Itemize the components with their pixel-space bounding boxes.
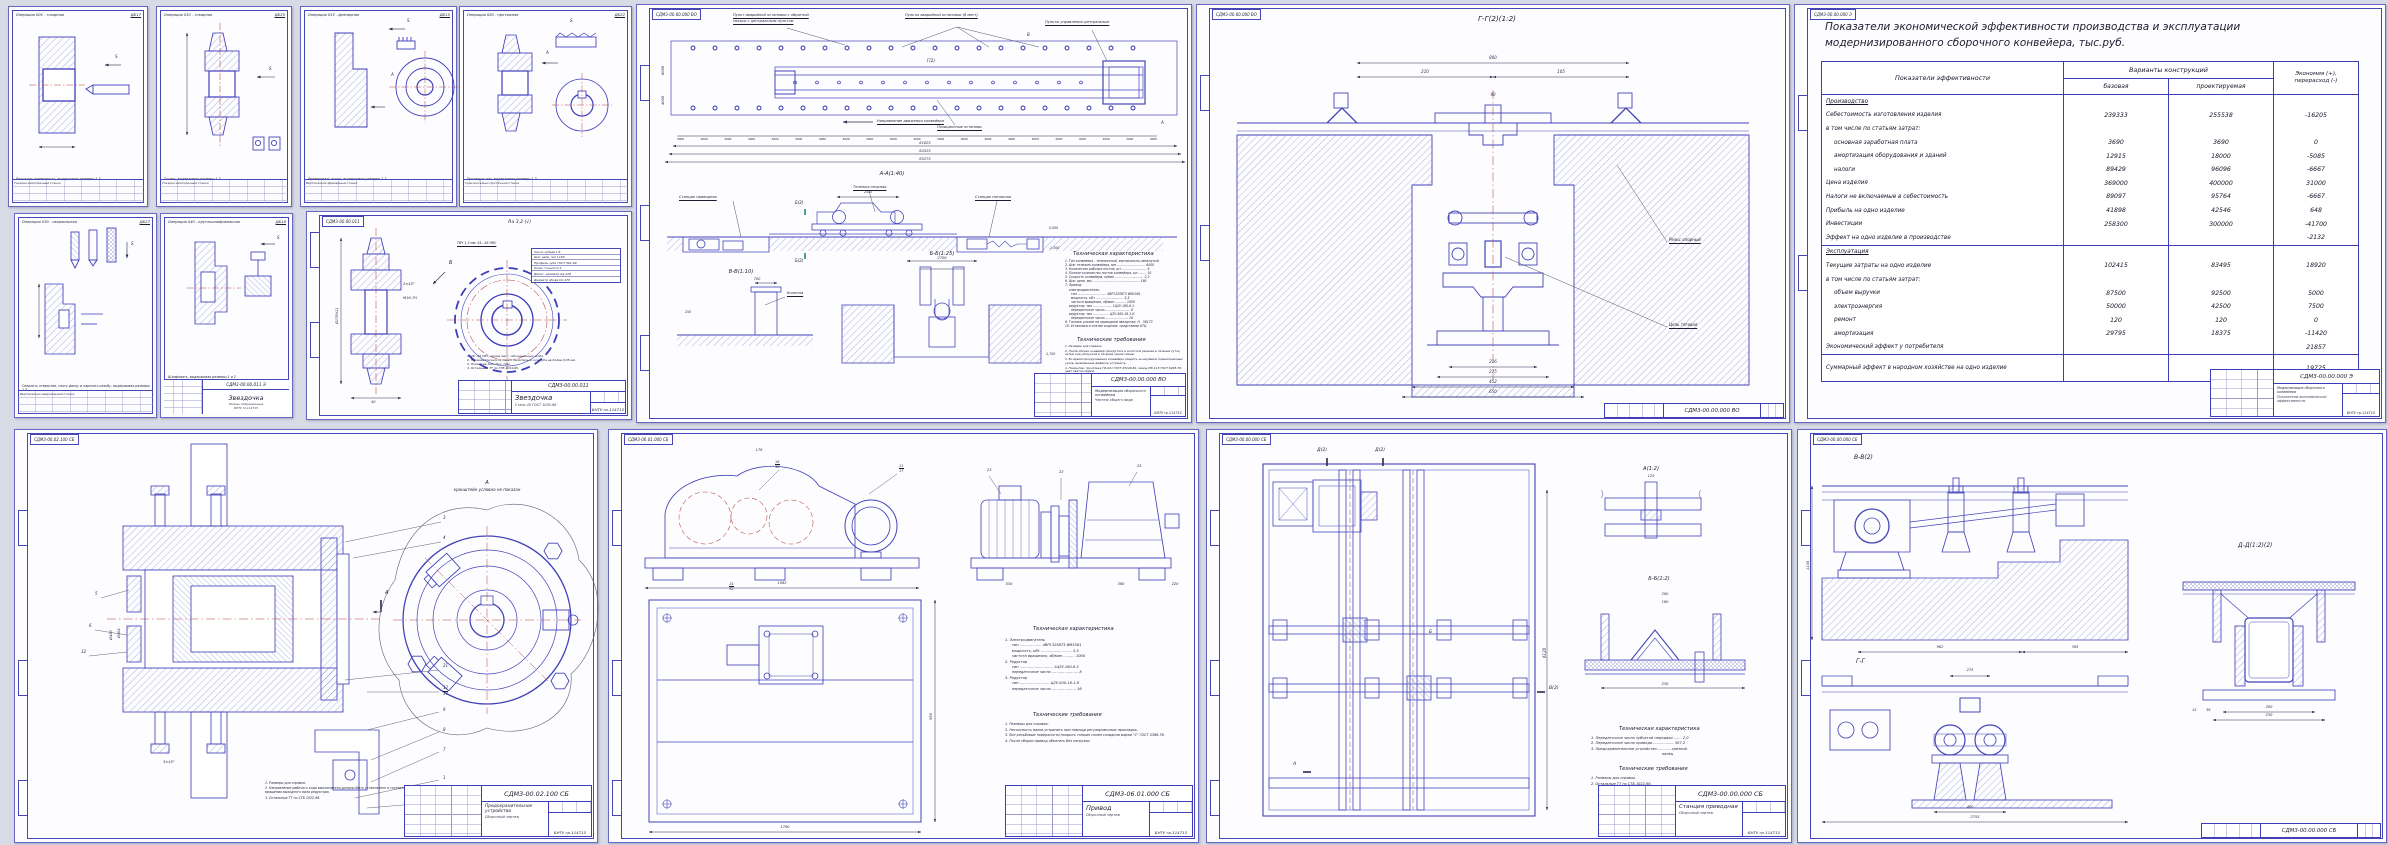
dim-label: 700 [754, 277, 761, 281]
sheet-op-card-4: Операция 020 - протяжная ДБ22 А S Протян… [459, 6, 632, 207]
dim-label: 178 [756, 448, 763, 452]
doc-type: Сборочный чертеж [1679, 811, 1739, 815]
sheet-op-card-1: Операция 005 - токарная ДБ17 S Расточить… [8, 6, 148, 207]
dim-label: 395 [2072, 645, 2079, 649]
dim-label: 275 [1489, 370, 1497, 375]
station-title-block: СДМ3-00.00.000 СБ Станция приводная Сбор… [1598, 785, 1786, 837]
doc-type: Сборочный чертеж [485, 815, 545, 819]
op-card-table: Токарно-винторезный станок [160, 179, 288, 203]
econ-table-row: Прибыль на одно изделие 41898 42546 648 [1822, 204, 2358, 218]
detail-bb-label: Б-Б(1:2) [1648, 576, 1669, 582]
dim-label: Ø420 [109, 630, 113, 640]
op-card-table: Вертикально-сверлильный станок [18, 390, 153, 414]
econ-table-row: Себестоимость изготовления изделия 23933… [1822, 109, 2358, 123]
dim-label: 452 [1489, 380, 1497, 385]
elevation-label: -1,700 [1045, 353, 1055, 357]
detail-a-label: А(1:2) [1643, 466, 1659, 472]
doc-code: СДМ3-00.00.000 Э [2274, 370, 2379, 384]
view-a-label: А [546, 51, 549, 56]
feed-label: S [131, 242, 134, 247]
doc-title: Предохранительное устройство [485, 804, 545, 814]
callout: 25 [1137, 464, 1142, 468]
tech-req-list: 1. Размеры для справок.2. Несоосность ва… [1005, 722, 1190, 744]
econ-table-row: Текущие затраты на одно изделие 102415 8… [1822, 259, 2358, 273]
org-label: БНТУ гр.114715 [591, 403, 625, 413]
dim-label: 2755 [1970, 815, 1979, 819]
feed-label: S [570, 19, 573, 24]
sheet-conveyor-general-view: СДМ3-00.00.000 ВО [636, 4, 1192, 423]
tech-char-list: 1. Электродвигатель тип ................… [1005, 638, 1085, 692]
part-name: Звездочка [515, 394, 587, 402]
sprocket-title-block: СДМ3-00.00.011 Звездочка Сталь 45 ГОСТ 1… [458, 380, 626, 414]
step-dims-row: 3000300030003000300030003000300030003000… [677, 138, 1157, 141]
col-header-economy: Экономия (+),перерасход (-) [2274, 62, 2358, 94]
org-label: БНТУ гр.114715 [234, 406, 258, 410]
econ-table-row: ремонт 120 120 0 [1822, 314, 2358, 328]
sprocket-notes: 1. 28...32 HRC, кроме мест, обозначенных… [467, 354, 625, 370]
dim-label: 800 [1489, 56, 1497, 61]
part-name: Звездочка [228, 394, 263, 402]
feed-label: S [115, 55, 118, 60]
col-header-indicators: Показатели эффективности [1822, 62, 2064, 94]
doc-title: Привод [1086, 804, 1146, 812]
callout: 21 [443, 664, 448, 669]
dim-label: 230 [1662, 682, 1669, 686]
tech-req-title: Технические требования [1033, 712, 1102, 718]
dim-label: 1780 [780, 825, 789, 829]
label-emergency-stops: Пульты аварийной остановки (6 мест) [905, 13, 978, 17]
marker-v: В(2) [1549, 686, 1559, 691]
label-emergency-stop-feedback-2: связью с центральным пультом [733, 19, 794, 23]
label-traction-chain: Цепь тяговая [1669, 323, 1697, 328]
econ-title-line1: Показатели экономической эффективности п… [1825, 21, 2240, 33]
dim-label: 40 [371, 400, 376, 404]
dim-label: 65275 [919, 157, 930, 161]
label-emergency-stop-feedback: Пульт аварийной остановки с обратной [733, 13, 809, 17]
callout: 7 [443, 748, 446, 753]
doc-code: СДМ3-06.01.000 СБ [1083, 786, 1192, 802]
org-label: БНТУ гр.114715 [1150, 813, 1192, 836]
dim-label: Ø176h11 [335, 307, 339, 324]
drive-title-block: СДМ3-06.01.000 СБ Привод Сборочный черте… [1005, 785, 1193, 837]
sprocket-param-table: Число зубьев z 8Шаг цепи, мм t 160Профил… [531, 248, 621, 283]
callout: 1217 [443, 686, 448, 696]
section-aa-label: А-А(1:40) [880, 171, 905, 177]
view-b-label: Б [449, 260, 453, 266]
label-central-controls: Пульты управления центральные [1045, 20, 1109, 24]
marker-g2: Г(2) [927, 59, 935, 64]
econ-table-row: Инвестиции 258300 300000 -41700 [1822, 217, 2358, 231]
doc-type: Чертеж общего вида [1095, 398, 1147, 402]
sheet-safety-device: СДМ3-00.02.100 СБ [14, 429, 598, 843]
dim-label: 3×45° [163, 760, 175, 764]
econ-table-row: налоги 89429 96096 -6667 [1822, 163, 2358, 177]
org-label: БНТУ гр.114715 [2343, 394, 2379, 416]
dim-label: 530 [1006, 582, 1013, 586]
doc-title: Модернизация сборочного конвейера [1095, 389, 1147, 397]
dim-label: 36 [2206, 708, 2211, 712]
dim-label: 160 [1662, 600, 1669, 604]
doc-code: СДМ3-00.02.100 СБ [482, 786, 591, 802]
econ-table-row: электроэнергия 50000 42500 7500 [1822, 300, 2358, 314]
dim-label: 250 [685, 311, 691, 315]
material-label: Сталь 45 ГОСТ 1050-88 [515, 403, 587, 407]
label-tension-station: Станция натяжная [975, 195, 1011, 199]
feed-label: S [269, 67, 272, 72]
dim-label: Ø404 [117, 628, 121, 638]
dim-label: 275 [1967, 668, 1974, 672]
label-column: Колонна [787, 291, 803, 295]
elevation-label: 0,000 [1049, 227, 1058, 231]
econ-title-block: СДМ3-00.00.000 Э Модернизация сборочного… [2210, 369, 2380, 417]
econ-title-line2: модернизированного сборочного конвейера,… [1825, 37, 2125, 49]
conveyor-title-block: СДМ3-00.00.000 ВО Модернизация сборочног… [1034, 373, 1186, 417]
marker-d1: Д(2) [1317, 448, 1327, 453]
tech-char-title: Техническая характеристика [1033, 626, 1114, 632]
view-a-label: А [391, 73, 394, 78]
dim-label: 200 [2266, 705, 2273, 709]
marker-d2: Д(2) [1375, 448, 1385, 453]
elevation-label: -1,500 [1049, 247, 1059, 251]
doc-code: СДМ3-00.00.011 [512, 381, 625, 392]
doc-code: СДМ3-00.00.011 Э [203, 380, 289, 390]
marker-b2: Б(2) [795, 201, 803, 206]
marker-b: Б [1429, 630, 1432, 635]
callout: 23 [987, 468, 992, 472]
callout: 4 [443, 536, 446, 541]
sheet-op-card-2: Операция 010 - токарная ДБ25 S Точить, в… [156, 6, 292, 207]
callout: 1117 [899, 464, 904, 473]
econ-table-row: основная заработная плата 3690 3690 0 [1822, 136, 2358, 150]
doc-title: Модернизация сборочного конвейера [2277, 386, 2339, 394]
dim-label: 550 [929, 713, 933, 720]
dim-label: 230 [2266, 713, 2273, 717]
section-vv-label: В-В(1:10) [729, 269, 754, 275]
econ-table-row: в том числе по статьям затрат: [1822, 273, 2358, 287]
dim-label: 1062 [777, 581, 786, 585]
label-drive-station: Станция приводная [679, 195, 717, 199]
dim-label: 962 [1937, 645, 1944, 649]
sheet-op-card-3: Операция 015 - фрезерная ДБ15 S А Фрезер… [300, 6, 457, 207]
op-card-table: Токарно-винторезный станок [12, 179, 144, 203]
econ-table-row: объем выручки 87500 92500 5000 [1822, 286, 2358, 300]
econ-table: Показатели эффективности Варианты констр… [1821, 61, 2359, 382]
econ-table-row: Эксплуатация [1822, 245, 2358, 260]
sheet-section-gg: СДМ3-00.00.000 ВО Г-Г(2)(1:2) [1196, 4, 1790, 423]
econ-table-row: амортизация оборудования и зданий 12915 … [1822, 149, 2358, 163]
op-card-6-title-block: СДМ3-00.00.011 Э Звездочка Эскизы операц… [164, 379, 289, 414]
sections-title-block: СДМ3-00.00.000 СБ [2201, 823, 2381, 838]
doc-code: СДМ3-00.00.000 СБ [2261, 824, 2357, 837]
drive-assembly-drawing [609, 430, 1198, 842]
label-support-rail: Рельс опорный [1669, 238, 1701, 243]
econ-table-body: Производство Себестоимость изготовления … [1822, 95, 2358, 381]
dim-label: 200 [1662, 592, 1669, 596]
dim-label: 210 [1421, 70, 1429, 75]
tech-req-title: Технические требования [1619, 766, 1688, 772]
callout: 12 [81, 650, 86, 655]
org-label: БНТУ гр.114715 [1743, 813, 1785, 836]
corner-code: СДМ3-00.00.000 Э [1810, 9, 1856, 20]
dim-label: 64325 [919, 149, 930, 153]
sheet-drive-assembly: СДМ3-06.01.000 СБ [608, 429, 1199, 843]
view-a-label: А [485, 480, 489, 486]
tech-req-title: Технические требования [1077, 337, 1146, 343]
dim-label: 360 [1118, 582, 1125, 586]
section-dd-label: Д-Д(1:2)(2) [2238, 542, 2272, 549]
econ-table-row: Налоги не включаемые в себестоимость 890… [1822, 190, 2358, 204]
label-direction: Направление движения конвейера [877, 119, 944, 123]
sections-drawing [1798, 430, 2386, 842]
sheet-op-card-5: Операция 030 - сверлильная ДБ27 S Сверли… [14, 213, 157, 418]
dim-label: 4000 [661, 96, 665, 105]
doc-code: СДМ3-00.00.000 СБ [1676, 786, 1785, 802]
gg-title-block: СДМ3-00.00.000 ВО [1604, 403, 1784, 418]
dim-label: 15 [2192, 708, 2197, 712]
marker-a: А [385, 590, 389, 596]
org-label: БНТУ гр.114715 [1151, 396, 1185, 416]
callout: 9 [443, 708, 446, 713]
econ-table-row: Производство [1822, 95, 2358, 109]
blueprint-collage: Операция 005 - токарная ДБ17 S Расточить… [0, 0, 2388, 845]
dim-label: 125 [1648, 474, 1655, 478]
org-label: БНТУ гр.114715 [549, 813, 591, 836]
econ-table-header: Показатели эффективности Варианты констр… [1822, 62, 2358, 95]
sheet-economic-table: СДМ3-00.00.000 Э Показатели экономическо… [1794, 4, 2386, 423]
sheet-sprocket-detail: СДМ3-00.00.011 Ra 3,2 (√) Ø176h11 40 М16… [306, 211, 632, 420]
surface-note: ТВЧ 1,3 мм; 45...48 HRC [457, 242, 496, 246]
marker-v: В [1027, 33, 1030, 38]
doc-code: СДМ3-00.00.000 ВО [1664, 404, 1760, 417]
dim-label: 1130 [1806, 561, 1810, 570]
dim-label: 105 [1557, 70, 1565, 75]
doc-code: СДМ3-00.00.000 ВО [1092, 374, 1185, 387]
dim-label: 6000 [661, 66, 665, 75]
callout: 6 [89, 624, 92, 629]
dim-label: 220 [1172, 582, 1179, 586]
label-position-stops: Позиционные остановы [937, 125, 982, 129]
callout: 1532 [729, 582, 734, 591]
tech-char-title: Техническая характеристика [1619, 726, 1700, 732]
dim-label: М16-7Н [403, 296, 417, 300]
callout: 8 [443, 728, 446, 733]
sheet-op-card-6: Операция 040 - круглошлифовальная ДБ18 S… [160, 213, 293, 418]
tech-char-list: 1. Передаточное число зубчатой передачи … [1591, 736, 1689, 758]
dim-label: 2445 [864, 191, 872, 195]
callout: 1638 [775, 460, 780, 469]
econ-table-row: Цена изделия 369000 400000 31000 [1822, 177, 2358, 191]
safety-title-block: СДМ3-00.02.100 СБ Предохранительное устр… [404, 785, 592, 837]
tech-char-list: 1. Тип конвейера - тележечный, вертикаль… [1065, 259, 1159, 328]
callout: 22 [1059, 470, 1064, 474]
section-vv-label: В-В(2) [1854, 454, 1873, 461]
econ-table-row: Экономический эффект у потребителя 21857 [1822, 341, 2358, 355]
doc-type: Сборочный чертеж [1086, 813, 1146, 817]
callout: 1 [443, 776, 446, 781]
view-a-note: кронштейн условно не показан [454, 488, 521, 493]
sheet-sections: СДМ3-00.00.000 СБ [1797, 429, 2387, 843]
dim-label: 2700 [937, 256, 946, 260]
label-trolley: Тележка опорная [853, 185, 886, 189]
dim-label: 650 [1489, 390, 1497, 395]
econ-table-row: в том числе по статьям затрат: [1822, 122, 2358, 136]
op-card-table: Вертикально-фрезерный станок [304, 179, 453, 203]
econ-table-row: амортизация 29795 18375 -11420 [1822, 327, 2358, 341]
dim-label: 61825 [919, 141, 930, 145]
dim-label: 216 [1489, 360, 1497, 365]
doc-type: Показатели экономической эффективности [2277, 395, 2339, 403]
econ-table-row: Эффект на одно изделие в производстве -2… [1822, 231, 2358, 245]
col-header-base: базовая [2064, 79, 2169, 94]
doc-title: Станция приводная [1679, 804, 1739, 810]
callout: 3 [443, 516, 446, 521]
dim-label: 90 [1490, 93, 1495, 98]
col-header-variants: Варианты конструкций [2064, 62, 2274, 79]
sheet-drive-station: СДМ3-00.00.000 СБ [1206, 429, 1792, 843]
feed-label: S [407, 19, 410, 24]
feed-label: S [277, 236, 280, 241]
marker-a: А [1293, 762, 1296, 767]
tech-char-title: Техническая характеристика [1073, 251, 1154, 257]
dim-label: 2×45° [403, 282, 415, 286]
marker-b2-low: Б(2) [795, 259, 803, 264]
op-card-table: Горизонтально-протяжной станок [463, 179, 628, 203]
dim-label: 400 [1967, 805, 1974, 809]
col-header-projected: проектируемая [2169, 79, 2274, 94]
callout: 5 [95, 592, 98, 597]
section-gg-label: Г-Г [1856, 658, 1865, 665]
dim-label: 6120 [1543, 648, 1548, 658]
marker-a: А [1161, 121, 1164, 126]
